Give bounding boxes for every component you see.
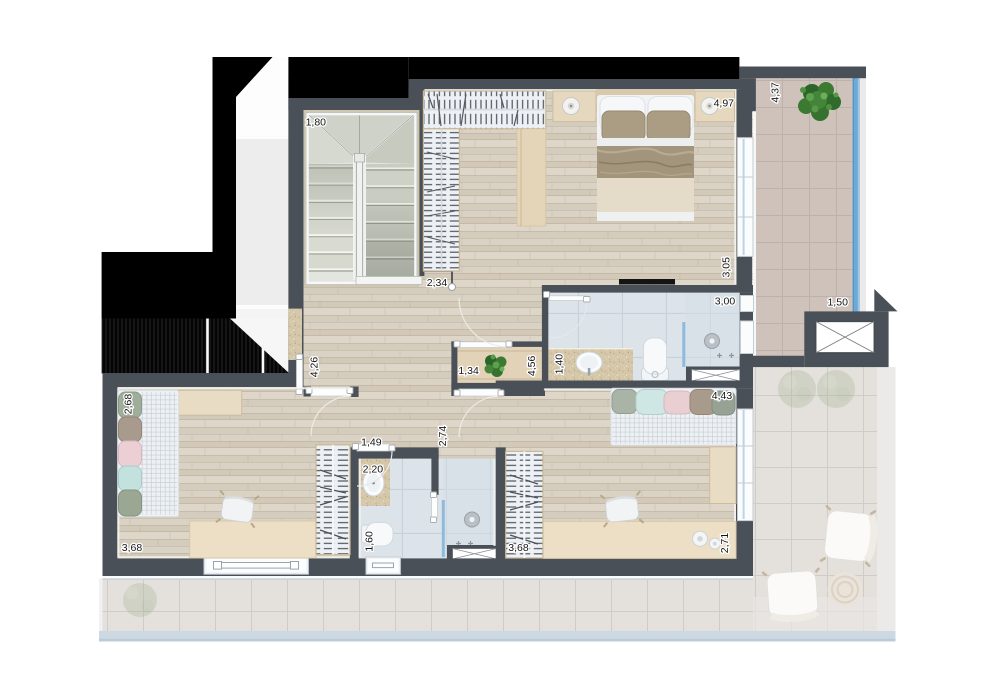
svg-text:1,34: 1,34: [458, 365, 479, 377]
svg-text:4,43: 4,43: [712, 390, 733, 402]
svg-text:1,49: 1,49: [361, 436, 382, 448]
svg-text:2,20: 2,20: [363, 464, 384, 476]
svg-text:1,60: 1,60: [364, 531, 376, 552]
svg-text:1,40: 1,40: [554, 354, 566, 375]
svg-text:3,68: 3,68: [122, 542, 143, 554]
svg-text:1,50: 1,50: [827, 296, 848, 308]
svg-text:4,56: 4,56: [526, 356, 538, 377]
svg-text:2,34: 2,34: [427, 277, 448, 289]
svg-text:4,37: 4,37: [770, 82, 782, 103]
svg-text:3,00: 3,00: [715, 296, 736, 308]
svg-text:2,71: 2,71: [719, 533, 731, 554]
svg-text:3,68: 3,68: [508, 542, 529, 554]
svg-text:2,74: 2,74: [437, 426, 449, 447]
svg-text:4,97: 4,97: [714, 98, 735, 110]
svg-text:2,68: 2,68: [123, 394, 135, 415]
svg-text:1,80: 1,80: [306, 116, 327, 128]
svg-text:4,26: 4,26: [309, 357, 321, 378]
svg-text:3,05: 3,05: [721, 257, 733, 278]
